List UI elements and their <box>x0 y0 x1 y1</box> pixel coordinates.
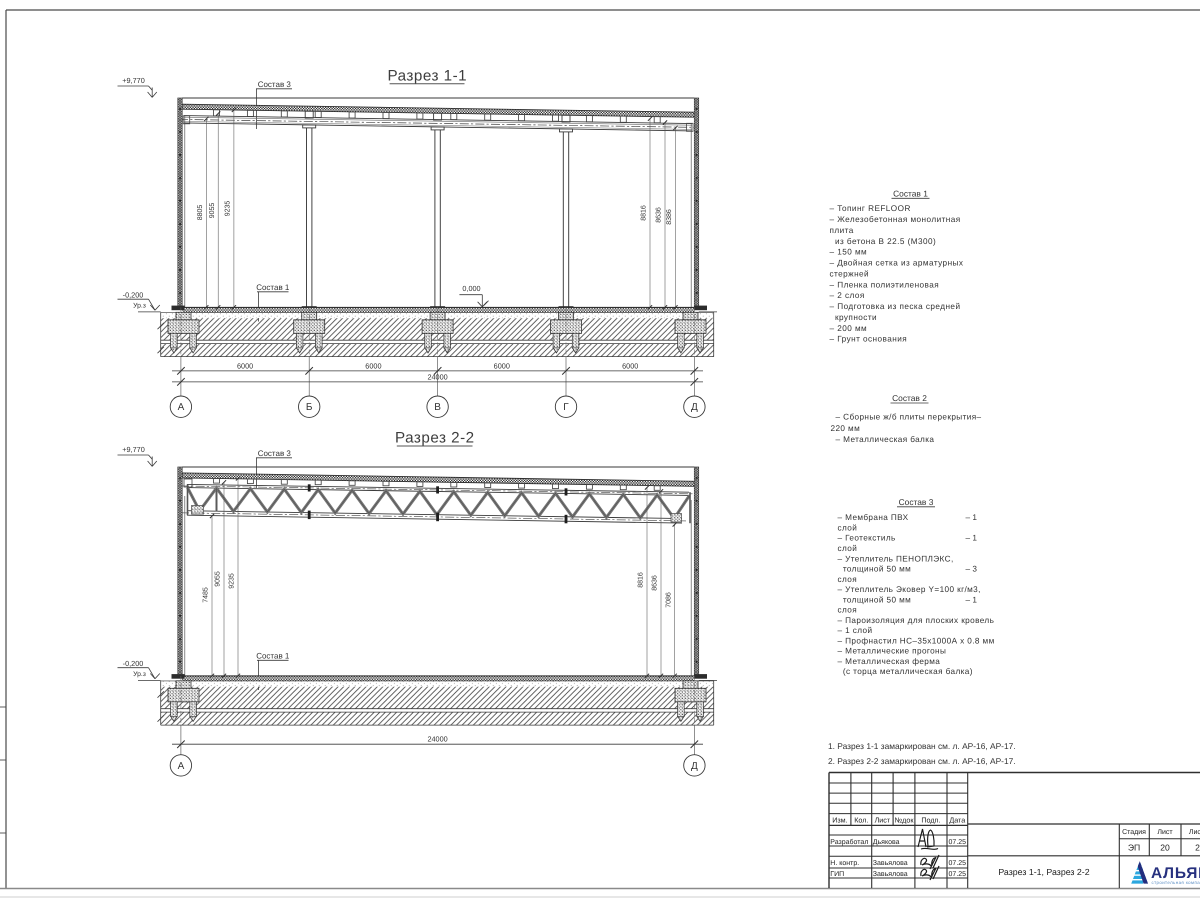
svg-text:(с торца металлическая балка): (с торца металлическая балка) <box>838 667 973 676</box>
svg-text:– 200 мм: – 200 мм <box>830 324 868 333</box>
svg-text:– 1: – 1 <box>966 595 978 604</box>
svg-text:Лист: Лист <box>875 815 891 824</box>
svg-text:1. Разрез 1-1 замаркирован см.: 1. Разрез 1-1 замаркирован см. л. АР-16,… <box>828 741 1016 751</box>
svg-text:– 1: – 1 <box>966 534 978 543</box>
svg-text:-0,200: -0,200 <box>123 659 144 668</box>
svg-text:Разработал: Разработал <box>830 838 868 846</box>
svg-text:из бетона В 22.5 (М300): из бетона В 22.5 (М300) <box>830 237 937 246</box>
svg-text:9235: 9235 <box>225 201 232 217</box>
svg-text:6000: 6000 <box>494 361 510 370</box>
svg-text:20: 20 <box>1160 843 1170 853</box>
svg-text:Н. контр.: Н. контр. <box>830 860 859 867</box>
svg-text:Ур.з: Ур.з <box>133 671 146 678</box>
svg-text:Лист: Лист <box>1157 829 1173 836</box>
svg-text:Д: Д <box>691 761 698 772</box>
svg-text:– Металлическая ферма: – Металлическая ферма <box>838 657 941 666</box>
svg-text:Состав 2: Состав 2 <box>892 393 927 403</box>
svg-text:6000: 6000 <box>622 361 638 370</box>
svg-text:Завьялова: Завьялова <box>873 860 908 867</box>
svg-text:07.25: 07.25 <box>949 871 967 878</box>
svg-text:– 1: – 1 <box>966 513 978 522</box>
svg-text:– Мембрана ПВХ: – Мембрана ПВХ <box>838 513 909 522</box>
svg-text:строительная компания: строительная компания <box>1152 880 1200 885</box>
svg-text:Состав 1: Состав 1 <box>256 283 290 292</box>
svg-text:– Пленка полиэтиленовая: – Пленка полиэтиленовая <box>830 280 940 289</box>
svg-text:Кол.: Кол. <box>854 815 868 824</box>
svg-text:– Сборные ж/б плиты перекрытия: – Сборные ж/б плиты перекрытия– <box>836 413 982 422</box>
svg-text:Разрез 2-2: Разрез 2-2 <box>395 429 475 446</box>
svg-text:– 3: – 3 <box>966 565 978 574</box>
svg-text:№док: №док <box>894 815 914 824</box>
svg-text:Состав 3: Состав 3 <box>258 449 292 458</box>
svg-text:– Железобетонная монолитная: – Железобетонная монолитная <box>830 215 961 224</box>
svg-text:24000: 24000 <box>427 735 447 744</box>
svg-text:– Профнастил НС–35х1000А х 0.8: – Профнастил НС–35х1000А х 0.8 мм <box>838 636 995 645</box>
svg-text:Изм.: Изм. <box>832 815 847 824</box>
svg-text:Состав 1: Состав 1 <box>893 188 928 198</box>
svg-text:220 мм: 220 мм <box>831 424 861 433</box>
svg-text:Б: Б <box>306 402 313 413</box>
svg-text:ЭП: ЭП <box>1128 843 1140 853</box>
svg-text:– Топинг REFLOOR: – Топинг REFLOOR <box>830 204 911 213</box>
svg-text:– Грунт основания: – Грунт основания <box>830 335 908 344</box>
svg-text:слоя: слоя <box>838 606 858 615</box>
svg-text:– Утеплитель Эковер Y=100 кг/м: – Утеплитель Эковер Y=100 кг/м3, <box>838 585 981 594</box>
svg-text:Д: Д <box>691 402 698 413</box>
svg-text:Стадия: Стадия <box>1122 829 1146 836</box>
svg-text:Разрез 1-1: Разрез 1-1 <box>388 67 468 84</box>
svg-text:-0,200: -0,200 <box>123 291 144 300</box>
svg-text:8636: 8636 <box>652 575 659 591</box>
svg-text:2. Разрез 2-2 замаркирован см.: 2. Разрез 2-2 замаркирован см. л. АР-16,… <box>828 756 1016 766</box>
svg-text:ГИП: ГИП <box>830 871 844 878</box>
svg-text:А: А <box>178 761 185 772</box>
svg-text:8816: 8816 <box>638 572 645 588</box>
svg-text:Состав 1: Состав 1 <box>256 652 290 661</box>
svg-text:– 150 мм: – 150 мм <box>830 248 868 257</box>
svg-text:– 1 слой: – 1 слой <box>838 626 873 635</box>
svg-text:– Металлическая балка: – Металлическая балка <box>836 435 935 444</box>
svg-text:8816: 8816 <box>641 205 648 221</box>
svg-text:крупности: крупности <box>830 313 878 322</box>
svg-text:Состав 3: Состав 3 <box>258 80 292 89</box>
svg-text:Дьякова: Дьякова <box>873 839 900 846</box>
svg-text:07.25: 07.25 <box>949 860 967 867</box>
svg-text:слой: слой <box>838 524 858 533</box>
svg-text:Завьялова: Завьялова <box>873 871 908 878</box>
svg-text:7086: 7086 <box>665 592 672 608</box>
svg-text:2: 2 <box>1195 843 1200 853</box>
svg-text:Лист: Лист <box>1189 829 1200 836</box>
svg-text:Разрез 1-1, Разрез 2-2: Разрез 1-1, Разрез 2-2 <box>998 867 1089 877</box>
svg-text:А: А <box>178 402 185 413</box>
svg-text:плита: плита <box>830 226 854 235</box>
svg-text:– Геотекстиль: – Геотекстиль <box>838 534 896 543</box>
svg-text:8386: 8386 <box>666 209 673 225</box>
svg-text:9055: 9055 <box>215 571 222 587</box>
svg-text:– Утеплитель ПЕНОПЛЭКС,: – Утеплитель ПЕНОПЛЭКС, <box>838 554 954 563</box>
svg-text:В: В <box>434 402 441 413</box>
svg-text:толщиной 50 мм: толщиной 50 мм <box>838 565 912 574</box>
svg-text:07.25: 07.25 <box>949 839 967 846</box>
svg-text:24000: 24000 <box>427 372 447 381</box>
svg-text:– Двойная сетка из арматурных: – Двойная сетка из арматурных <box>830 259 964 268</box>
svg-text:Ур.з: Ур.з <box>133 303 146 310</box>
svg-text:0,000: 0,000 <box>462 284 480 293</box>
svg-text:– Металлические прогоны: – Металлические прогоны <box>838 647 947 656</box>
svg-text:слой: слой <box>838 544 858 553</box>
svg-text:6000: 6000 <box>365 361 381 370</box>
svg-text:8636: 8636 <box>656 207 663 223</box>
svg-text:Подп.: Подп. <box>921 815 940 824</box>
svg-text:6000: 6000 <box>237 361 253 370</box>
svg-text:Дата: Дата <box>949 815 965 824</box>
svg-text:– 2 слоя: – 2 слоя <box>830 291 865 300</box>
svg-text:Г: Г <box>563 402 569 413</box>
svg-text:9235: 9235 <box>229 573 236 589</box>
svg-text:+9,770: +9,770 <box>122 445 145 454</box>
svg-text:– Пароизоляция для плоских кро: – Пароизоляция для плоских кровель <box>838 616 995 625</box>
svg-text:стержней: стержней <box>830 269 870 278</box>
svg-text:9055: 9055 <box>209 203 216 219</box>
svg-text:слоя: слоя <box>838 575 858 584</box>
svg-text:7485: 7485 <box>203 587 210 603</box>
svg-text:Состав 3: Состав 3 <box>899 497 934 507</box>
svg-text:8805: 8805 <box>197 205 204 221</box>
svg-text:толщиной 50 мм: толщиной 50 мм <box>838 595 912 604</box>
svg-text:– Подготовка из песка средней: – Подготовка из песка средней <box>830 302 961 311</box>
svg-text:+9,770: +9,770 <box>122 76 145 85</box>
